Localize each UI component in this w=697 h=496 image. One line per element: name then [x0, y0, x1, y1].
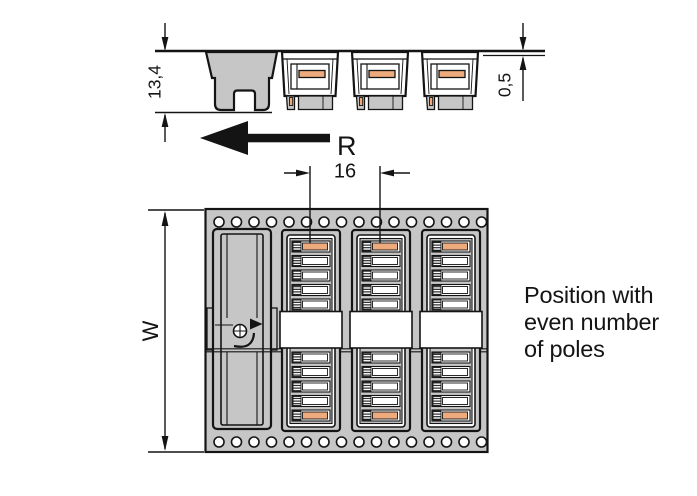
side-view: 13,4 0,5 R: [145, 23, 545, 161]
caption-line-1: Position with: [524, 282, 696, 309]
dim-arrowhead-up: [162, 211, 169, 226]
dim-arrowhead-up: [520, 56, 527, 70]
dim-arrowhead-up: [162, 113, 169, 127]
dim-tape-width: W: [138, 210, 204, 452]
connector-side-3: [422, 52, 478, 110]
direction-label: R: [337, 131, 357, 161]
datum-crosshair-icon: [234, 325, 247, 338]
dim-arrowhead-down: [520, 37, 527, 51]
caption-text: Position with even number of poles: [524, 282, 696, 363]
dim-tape-thickness: 0,5: [495, 23, 527, 101]
connector-side-2: [352, 52, 408, 110]
dim-text-pocket-pitch: 16: [334, 160, 356, 182]
dim-text-tape-thickness: 0,5: [495, 73, 515, 97]
connector-top-3: [420, 230, 482, 431]
unreeling-direction-arrow: R: [200, 121, 357, 161]
connector-top-1: [280, 230, 342, 431]
dim-arrowhead-down: [162, 436, 169, 451]
drawing-svg: 13,4 0,5 R: [0, 0, 697, 496]
empty-pocket-top: [207, 229, 277, 429]
dim-arrowhead-right: [296, 170, 310, 177]
dim-arrowhead-left: [380, 170, 394, 177]
connector-top-2: [350, 230, 412, 431]
caption-line-3: of poles: [524, 336, 696, 363]
dim-text-pocket-height: 13,4: [145, 65, 165, 99]
arrow-shaft: [244, 134, 330, 143]
left-arrow-icon: [200, 121, 248, 155]
empty-pocket-side: [206, 52, 277, 110]
technical-drawing-canvas: 13,4 0,5 R: [0, 0, 697, 496]
dim-arrowhead-down: [162, 37, 169, 51]
caption-line-2: even number: [524, 309, 696, 336]
dim-text-tape-width: W: [138, 320, 163, 341]
connector-side-1: [282, 52, 338, 110]
top-view: 16 W: [138, 160, 488, 452]
